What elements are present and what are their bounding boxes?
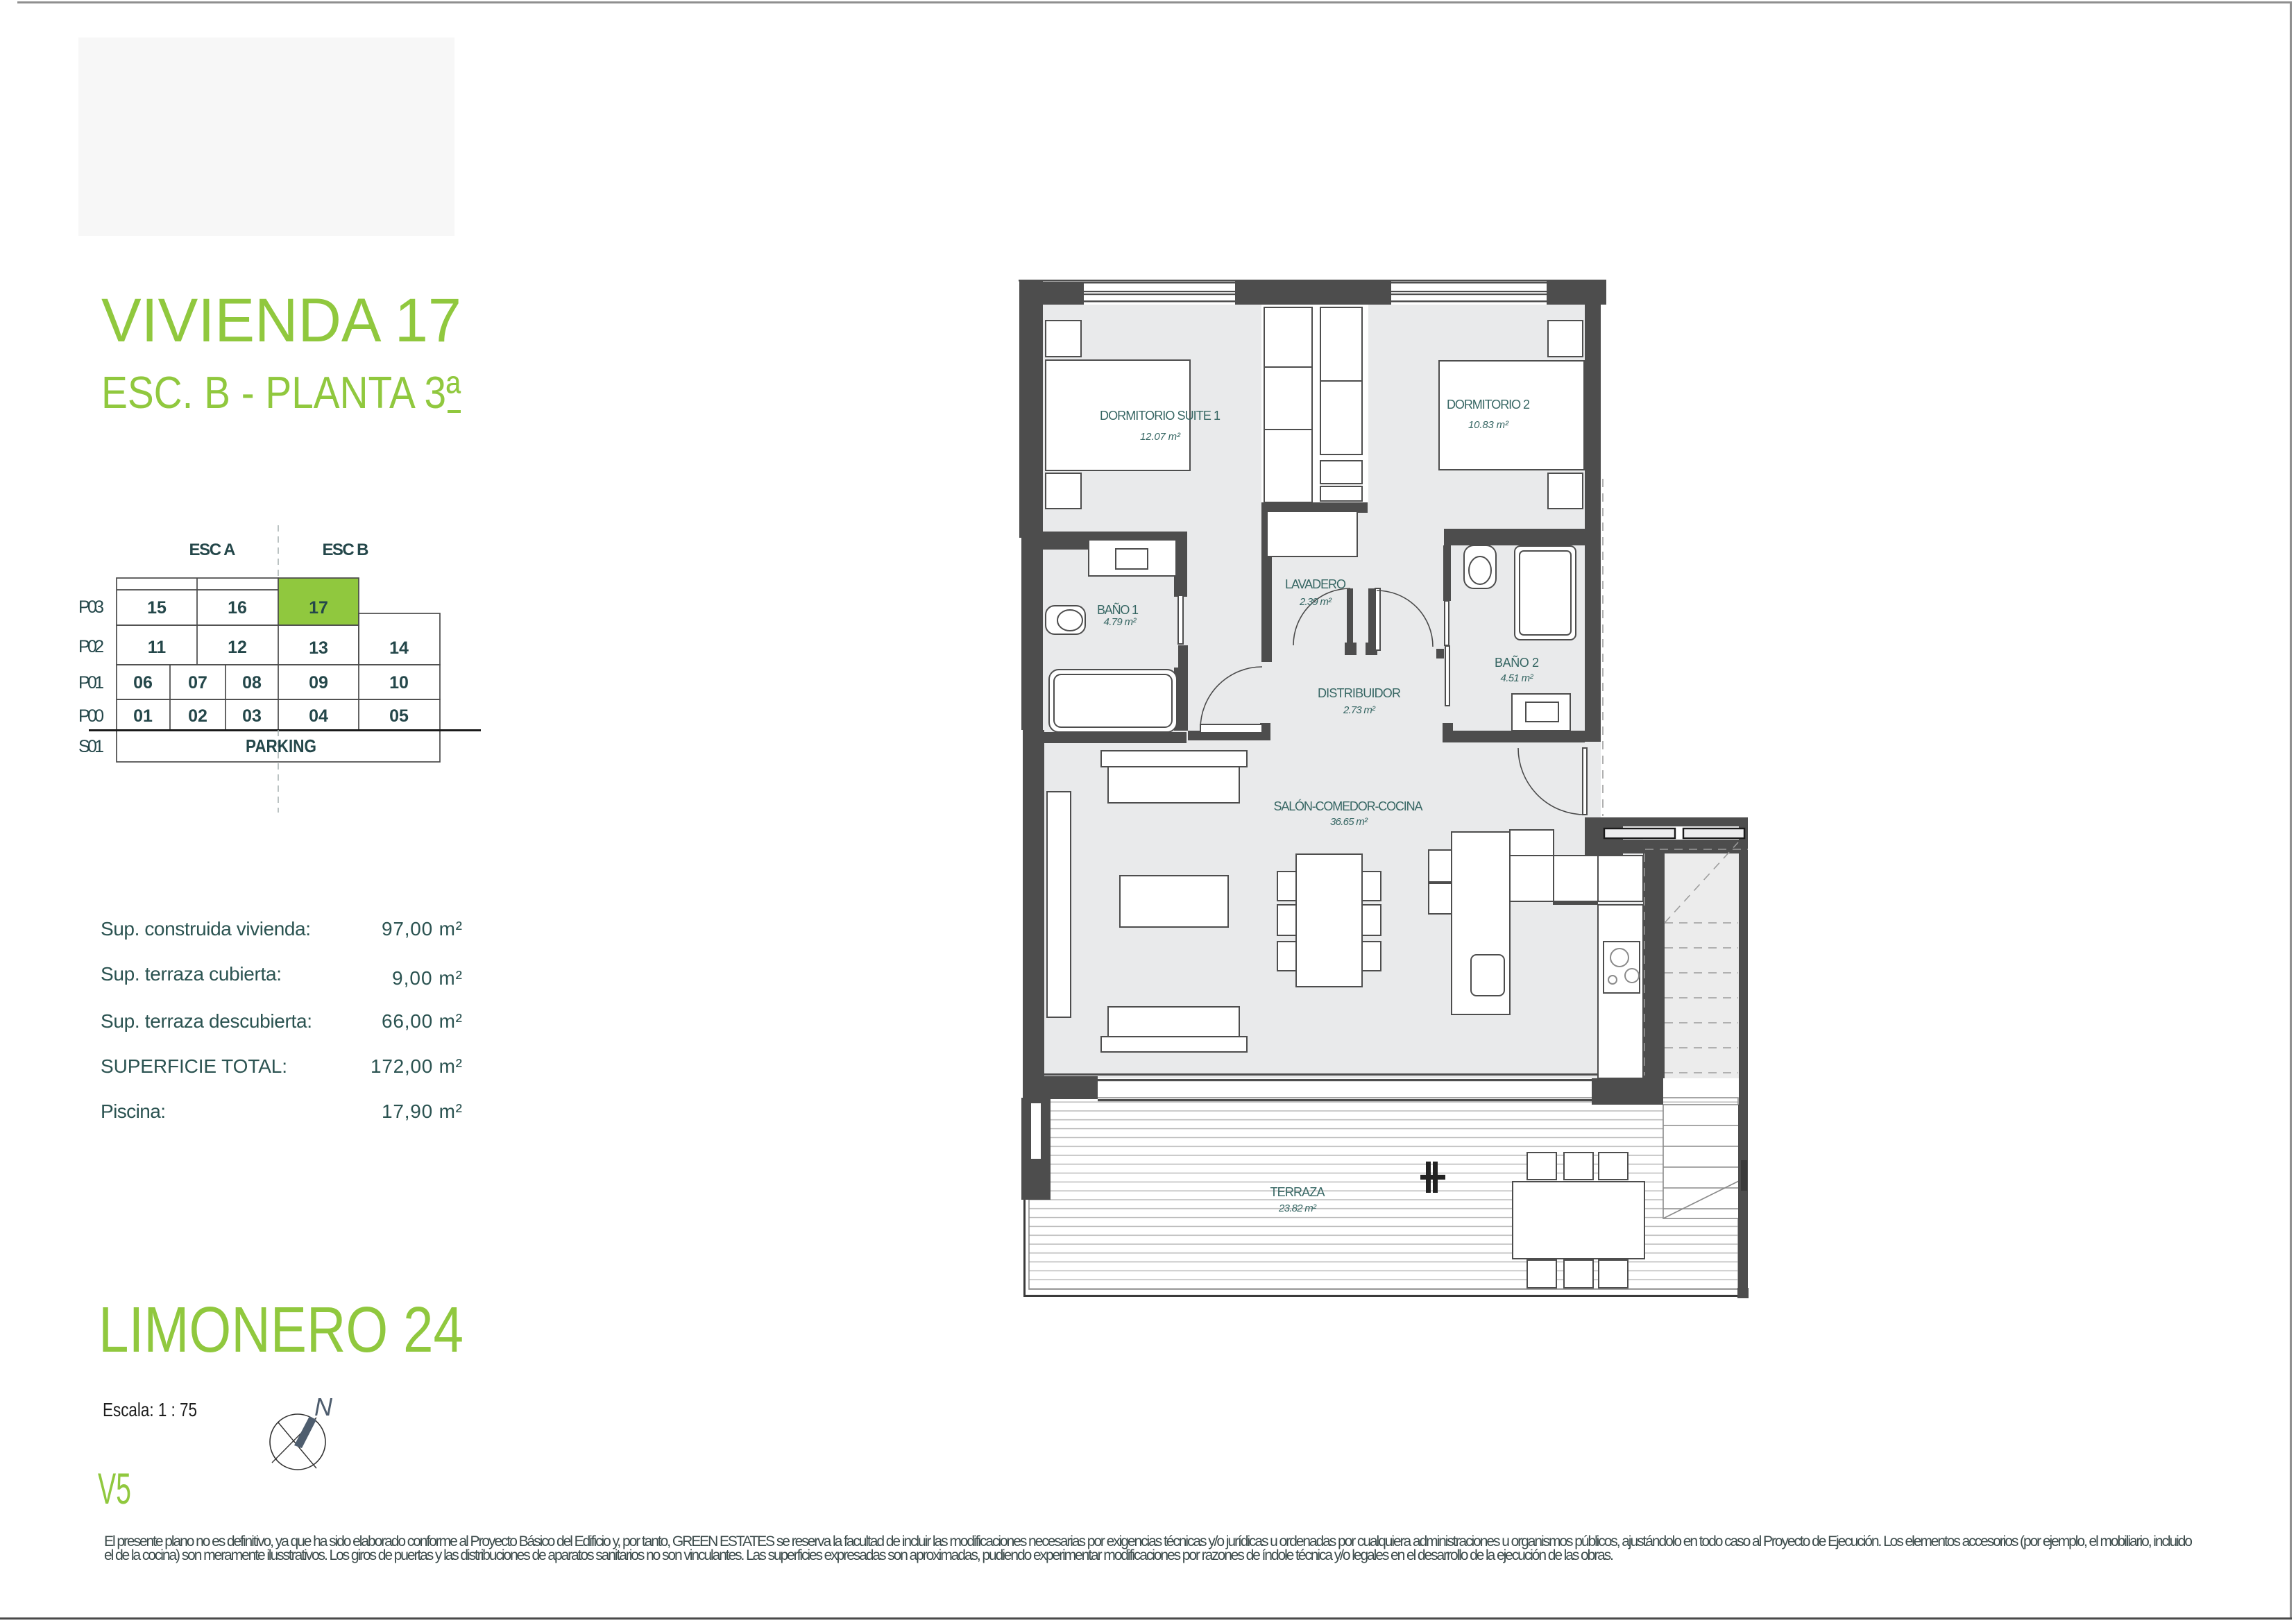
svg-text:01: 01 <box>133 706 153 726</box>
svg-text:VIVIENDA 17: VIVIENDA 17 <box>101 285 461 355</box>
svg-text:Sup. construida vivienda:: Sup. construida vivienda: <box>101 918 311 940</box>
svg-text:36.65 m²: 36.65 m² <box>1330 816 1368 828</box>
svg-text:Escala: 1 : 75: Escala: 1 : 75 <box>103 1399 197 1420</box>
svg-text:10: 10 <box>389 673 409 692</box>
svg-text:SUPERFICIE TOTAL:: SUPERFICIE TOTAL: <box>101 1055 287 1077</box>
svg-text:16: 16 <box>228 598 247 618</box>
svg-text:23.82 m²: 23.82 m² <box>1278 1203 1317 1214</box>
svg-text:P01: P01 <box>78 673 104 692</box>
svg-text:Sup. terraza cubierta:: Sup. terraza cubierta: <box>101 963 282 985</box>
svg-text:15: 15 <box>147 598 167 618</box>
svg-text:4.79 m²: 4.79 m² <box>1104 616 1137 628</box>
svg-text:DISTRIBUIDOR: DISTRIBUIDOR <box>1318 686 1401 700</box>
svg-text:97,00 m²: 97,00 m² <box>382 918 462 940</box>
svg-text:14: 14 <box>389 638 409 658</box>
svg-text:ESC A: ESC A <box>189 541 236 559</box>
svg-text:10.83 m²: 10.83 m² <box>1468 419 1509 431</box>
svg-text:P03: P03 <box>78 597 104 617</box>
svg-text:el de la cocina) son meramente: el de la cocina) son meramente ilusstrat… <box>104 1547 1614 1563</box>
svg-text:17: 17 <box>309 598 328 618</box>
svg-text:13: 13 <box>309 638 328 658</box>
svg-text:DORMITORIO 2: DORMITORIO 2 <box>1447 398 1530 411</box>
svg-text:66,00 m²: 66,00 m² <box>382 1010 462 1032</box>
svg-text:4.51 m²: 4.51 m² <box>1501 672 1534 684</box>
svg-text:SALÓN-COMEDOR-COCINA: SALÓN-COMEDOR-COCINA <box>1274 799 1423 813</box>
svg-text:V5: V5 <box>98 1465 131 1513</box>
svg-text:11: 11 <box>148 638 167 657</box>
svg-text:ESC. B - PLANTA 3ª: ESC. B - PLANTA 3ª <box>101 367 461 418</box>
svg-text:Sup. terraza descubierta:: Sup. terraza descubierta: <box>101 1010 312 1032</box>
svg-text:TERRAZA: TERRAZA <box>1270 1185 1325 1199</box>
svg-text:12.07 m²: 12.07 m² <box>1140 431 1181 443</box>
svg-text:09: 09 <box>309 673 328 692</box>
svg-text:PARKING: PARKING <box>246 736 316 756</box>
svg-text:ESC B: ESC B <box>323 541 369 559</box>
svg-text:07: 07 <box>188 673 207 692</box>
svg-text:P00: P00 <box>78 706 104 726</box>
svg-text:17,90 m²: 17,90 m² <box>382 1101 462 1122</box>
svg-text:LAVADERO: LAVADERO <box>1285 577 1346 591</box>
svg-text:05: 05 <box>389 706 409 726</box>
svg-text:P02: P02 <box>78 637 104 656</box>
svg-text:9,00 m²: 9,00 m² <box>392 967 462 989</box>
svg-text:03: 03 <box>242 706 262 726</box>
svg-text:06: 06 <box>133 673 153 692</box>
svg-text:S01: S01 <box>78 737 104 756</box>
svg-text:2.39 m²: 2.39 m² <box>1299 596 1332 608</box>
svg-text:N: N <box>314 1393 333 1421</box>
svg-text:04: 04 <box>309 706 328 726</box>
svg-text:172,00 m²: 172,00 m² <box>371 1055 462 1077</box>
svg-text:02: 02 <box>188 706 207 726</box>
svg-text:2.73 m²: 2.73 m² <box>1343 704 1376 716</box>
svg-text:12: 12 <box>228 638 247 657</box>
svg-text:BAÑO 2: BAÑO 2 <box>1495 655 1539 670</box>
svg-text:DORMITORIO SUITE 1: DORMITORIO SUITE 1 <box>1100 409 1221 423</box>
svg-text:BAÑO 1: BAÑO 1 <box>1097 602 1139 617</box>
svg-text:Piscina:: Piscina: <box>101 1101 166 1122</box>
svg-text:08: 08 <box>242 673 262 692</box>
svg-text:LIMONERO 24: LIMONERO 24 <box>99 1293 464 1366</box>
